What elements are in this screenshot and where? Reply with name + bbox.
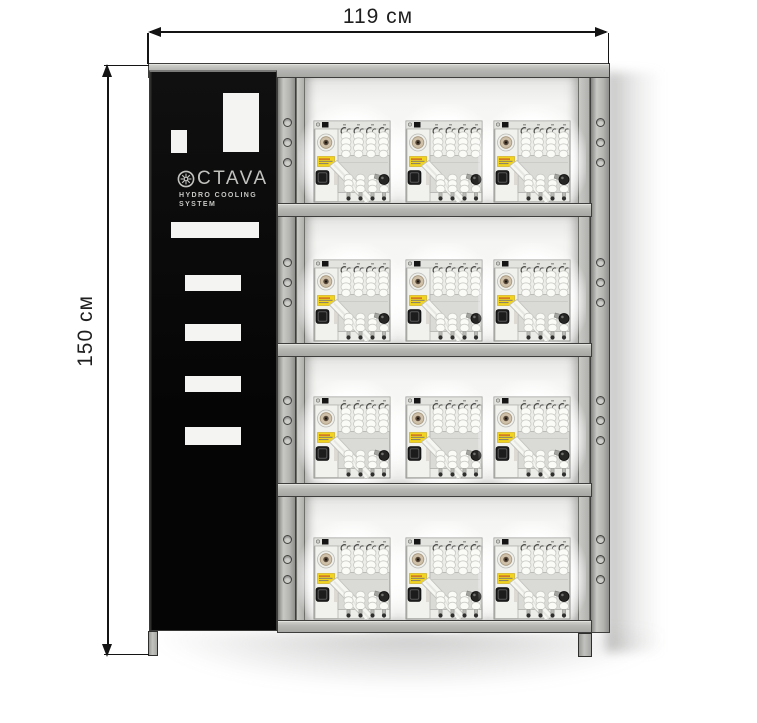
panel-cutout-large: [223, 93, 259, 152]
arrow-down-icon: [102, 644, 112, 657]
mounting-hole: [283, 436, 292, 445]
cooling-unit-graphic: [493, 258, 571, 342]
rack-bottom-bar: [277, 620, 592, 633]
control-panel: CTAVA HYDRO COOLING SYSTEM: [149, 70, 277, 631]
cooling-unit-graphic: [405, 395, 483, 479]
cooling-unit: [405, 395, 483, 479]
cooling-unit: [493, 119, 571, 203]
mounting-hole: [283, 396, 292, 405]
mounting-hole: [596, 416, 605, 425]
mounting-hole: [283, 118, 292, 127]
cooling-unit-graphic: [493, 395, 571, 479]
cooling-unit-graphic: [313, 119, 391, 203]
width-dimension-tick-left: [147, 33, 149, 64]
height-dimension-line: [107, 72, 109, 650]
brand-text: CTAVA: [197, 168, 269, 190]
panel-vent-slot-4: [185, 376, 241, 392]
mounting-hole: [596, 575, 605, 584]
mounting-hole: [596, 535, 605, 544]
shelf-bar-3: [277, 483, 592, 497]
snowflake-emblem-icon: [177, 170, 195, 188]
rack-post-right: [590, 63, 610, 633]
cooling-unit: [313, 258, 391, 342]
cooling-unit-graphic: [405, 258, 483, 342]
panel-vent-slot-1: [171, 222, 259, 238]
rack-diagram: CTAVA HYDRO COOLING SYSTEM 119 см 150 см: [0, 0, 757, 723]
arrow-right-icon: [595, 27, 608, 37]
mounting-hole: [596, 278, 605, 287]
cooling-unit: [493, 258, 571, 342]
shelf-bar-1: [277, 203, 592, 217]
width-dimension-tick-right: [608, 33, 610, 64]
mounting-hole: [283, 535, 292, 544]
mounting-hole: [596, 298, 605, 307]
cooling-unit: [405, 119, 483, 203]
mounting-hole: [596, 118, 605, 127]
cooling-unit-graphic: [313, 395, 391, 479]
cooling-unit: [493, 395, 571, 479]
cabinet-shadow-bottom: [150, 632, 670, 690]
mounting-hole: [596, 396, 605, 405]
height-dimension-label: 150 см: [74, 285, 98, 377]
width-dimension-label: 119 см: [318, 5, 438, 29]
width-dimension-line: [150, 31, 606, 33]
brand-subtitle: HYDRO COOLING SYSTEM: [179, 192, 257, 209]
mounting-hole: [283, 278, 292, 287]
brand-subtitle-line1: HYDRO COOLING: [179, 192, 257, 201]
mounting-hole: [283, 158, 292, 167]
panel-cutout-small: [171, 130, 187, 153]
cooling-unit-graphic: [405, 119, 483, 203]
panel-vent-slot-3: [185, 324, 241, 341]
mounting-hole: [596, 158, 605, 167]
brand-subtitle-line2: SYSTEM: [179, 201, 257, 210]
mounting-hole: [283, 138, 292, 147]
cooling-unit-graphic: [313, 536, 391, 620]
shelf-bar-2: [277, 343, 592, 357]
brand-logo: CTAVA: [177, 168, 269, 190]
cooling-unit: [313, 119, 391, 203]
mounting-hole: [596, 138, 605, 147]
cooling-unit-graphic: [405, 536, 483, 620]
cooling-unit: [493, 536, 571, 620]
cooling-unit: [405, 258, 483, 342]
panel-vent-slot-2: [185, 275, 241, 291]
mounting-hole: [283, 298, 292, 307]
arrow-up-icon: [102, 64, 112, 77]
cooling-unit: [405, 536, 483, 620]
mounting-hole: [596, 436, 605, 445]
mounting-hole: [596, 555, 605, 564]
rack-leg-left: [148, 631, 158, 656]
cooling-unit-graphic: [493, 536, 571, 620]
mounting-hole: [283, 416, 292, 425]
cooling-unit: [313, 395, 391, 479]
arrow-left-icon: [148, 27, 161, 37]
cooling-unit: [313, 536, 391, 620]
cooling-unit-graphic: [493, 119, 571, 203]
cabinet-shadow-right: [606, 72, 678, 652]
panel-vent-slot-5: [185, 427, 241, 445]
cooling-unit-graphic: [313, 258, 391, 342]
mounting-hole: [596, 258, 605, 267]
mounting-hole: [283, 258, 292, 267]
mounting-hole: [283, 555, 292, 564]
rack-leg-right: [578, 633, 592, 657]
mounting-hole: [283, 575, 292, 584]
